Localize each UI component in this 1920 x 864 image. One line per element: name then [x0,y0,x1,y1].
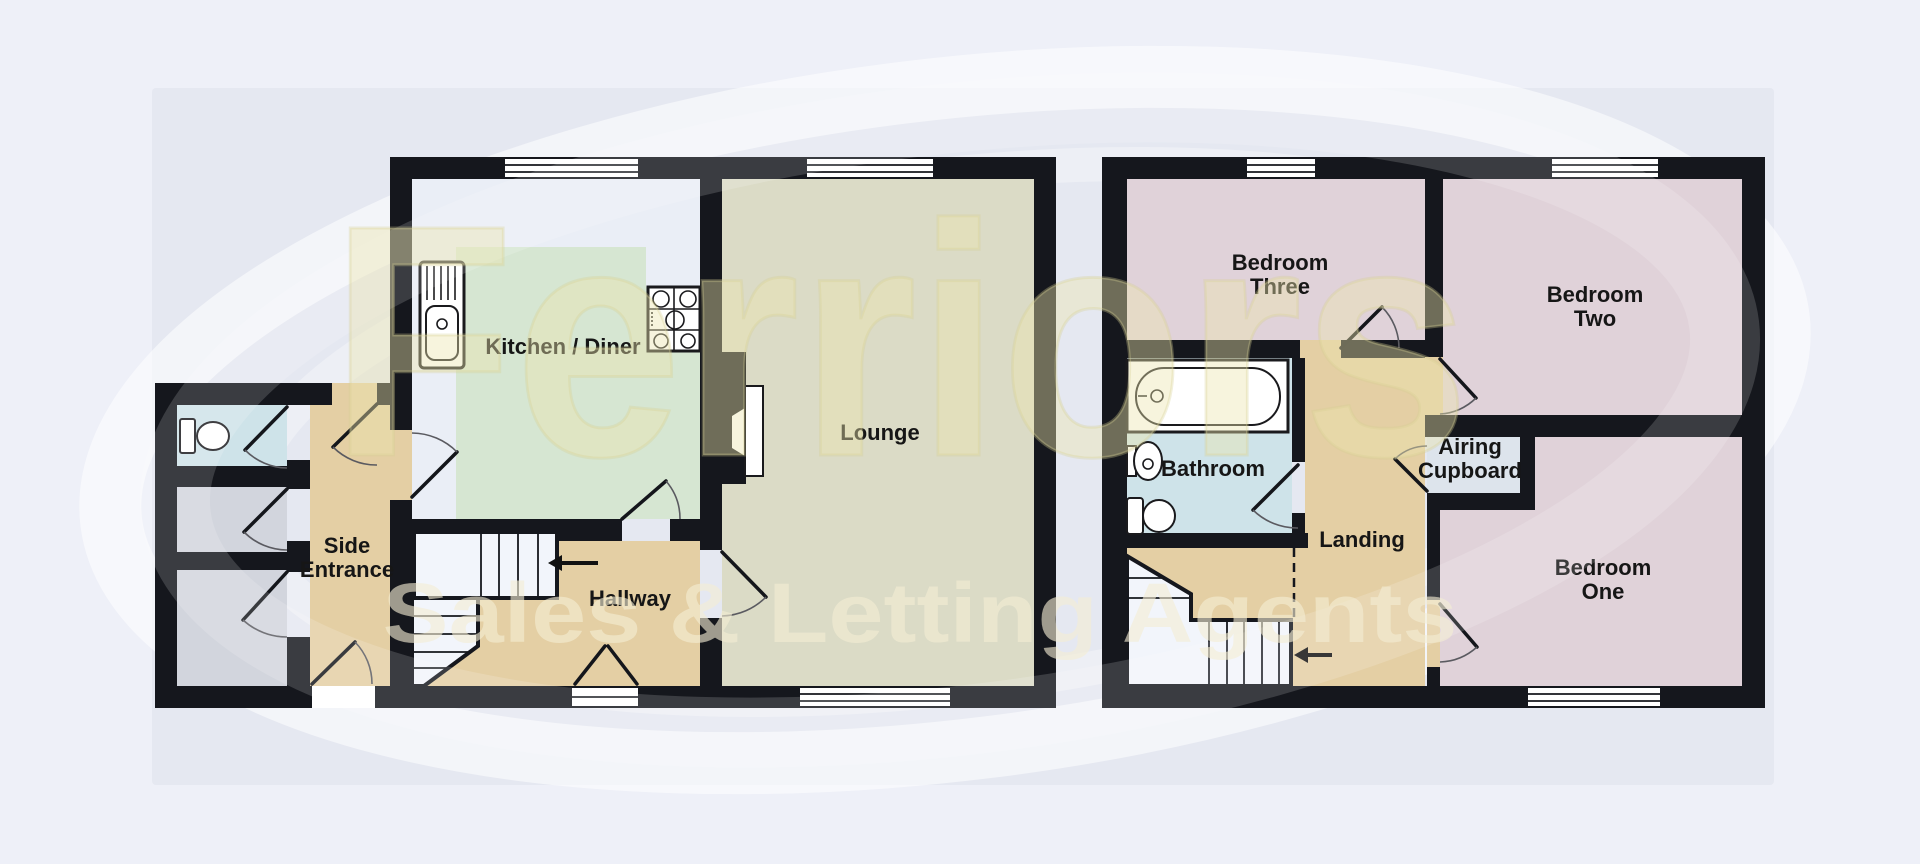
label-side-entrance-2: Entrance [300,557,394,582]
floorplan-canvas: Kitchen / Diner Lounge Side Entrance Hal… [0,0,1920,864]
watermark-brand-text: Ferriors [330,156,1470,525]
window-bedroom-one [1528,688,1660,706]
label-bedroom-two-2: Two [1574,306,1616,331]
label-landing: Landing [1319,527,1405,552]
label-bedroom-two-1: Bedroom [1547,282,1644,307]
label-bedroom-one-2: One [1582,579,1625,604]
watermark-tagline-text: Sales & Letting Agents [383,566,1458,660]
label-side-entrance-1: Side [324,533,370,558]
